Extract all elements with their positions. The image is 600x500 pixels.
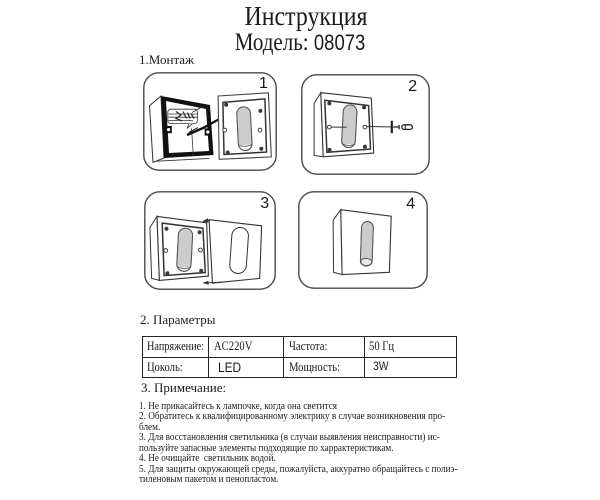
svg-text:2: 2 — [408, 78, 417, 95]
svg-text:3: 3 — [260, 195, 269, 212]
svg-text:4: 4 — [406, 196, 415, 213]
svg-text:1: 1 — [259, 75, 268, 92]
